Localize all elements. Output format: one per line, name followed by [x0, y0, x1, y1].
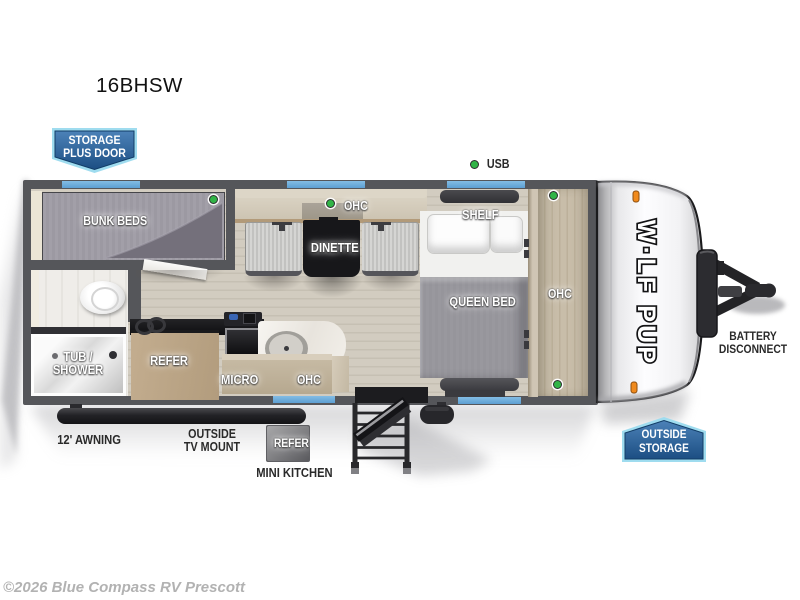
- svg-text:W·LF PUP: W·LF PUP: [632, 220, 660, 366]
